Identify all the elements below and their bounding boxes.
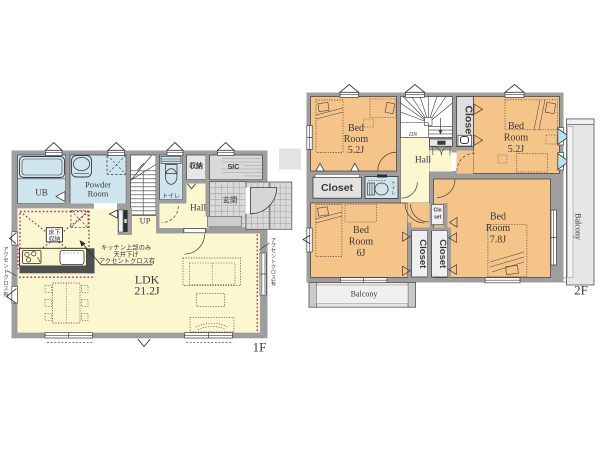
svg-text:アクセントクロス有: アクセントクロス有: [2, 246, 9, 299]
svg-text:床下: 床下: [48, 229, 60, 237]
svg-text:UB: UB: [35, 188, 48, 198]
svg-text:Room: Room: [88, 189, 109, 199]
svg-text:Balcony: Balcony: [574, 213, 583, 240]
svg-text:収納: 収納: [48, 235, 60, 243]
svg-text:Balcony: Balcony: [351, 290, 378, 299]
svg-text:21.2J: 21.2J: [134, 284, 160, 298]
svg-text:5.2J: 5.2J: [508, 144, 525, 155]
svg-text:Room: Room: [504, 133, 529, 144]
svg-text:Closet: Closet: [463, 105, 475, 138]
svg-text:Closet: Closet: [321, 182, 354, 194]
svg-text:DN: DN: [408, 132, 418, 138]
svg-text:Bed: Bed: [353, 225, 369, 236]
svg-text:Closet: Closet: [417, 239, 428, 269]
svg-text:Room: Room: [349, 237, 374, 248]
svg-text:Bed: Bed: [508, 121, 524, 132]
svg-text:Room: Room: [344, 134, 369, 145]
svg-text:Bed: Bed: [348, 123, 364, 134]
svg-text:SIC: SIC: [228, 162, 240, 171]
svg-text:Hall: Hall: [415, 156, 432, 166]
svg-text:Bed: Bed: [490, 212, 506, 223]
svg-text:5.2J: 5.2J: [348, 145, 365, 156]
svg-text:収納: 収納: [189, 161, 203, 170]
svg-text:7.8J: 7.8J: [490, 235, 507, 246]
svg-text:アクセントクロス有: アクセントクロス有: [99, 256, 155, 265]
svg-text:アクセントクロス有: アクセントクロス有: [270, 237, 277, 287]
svg-text:トイレ: トイレ: [390, 181, 395, 196]
svg-text:トイレ: トイレ: [162, 194, 180, 200]
svg-text:1F: 1F: [253, 340, 267, 355]
svg-text:6J: 6J: [357, 248, 366, 259]
svg-text:set: set: [434, 215, 442, 221]
svg-text:Hall: Hall: [190, 204, 207, 214]
svg-text:UP: UP: [140, 216, 151, 226]
svg-text:キッチン上部のみ: キッチン上部のみ: [101, 243, 151, 252]
svg-text:Closet: Closet: [437, 239, 448, 269]
svg-text:玄関: 玄関: [223, 195, 238, 205]
svg-text:天井下げ: 天井下げ: [113, 250, 139, 259]
svg-text:2F: 2F: [574, 283, 588, 298]
svg-text:物入: 物入: [438, 140, 446, 145]
svg-text:Clo: Clo: [434, 208, 442, 214]
